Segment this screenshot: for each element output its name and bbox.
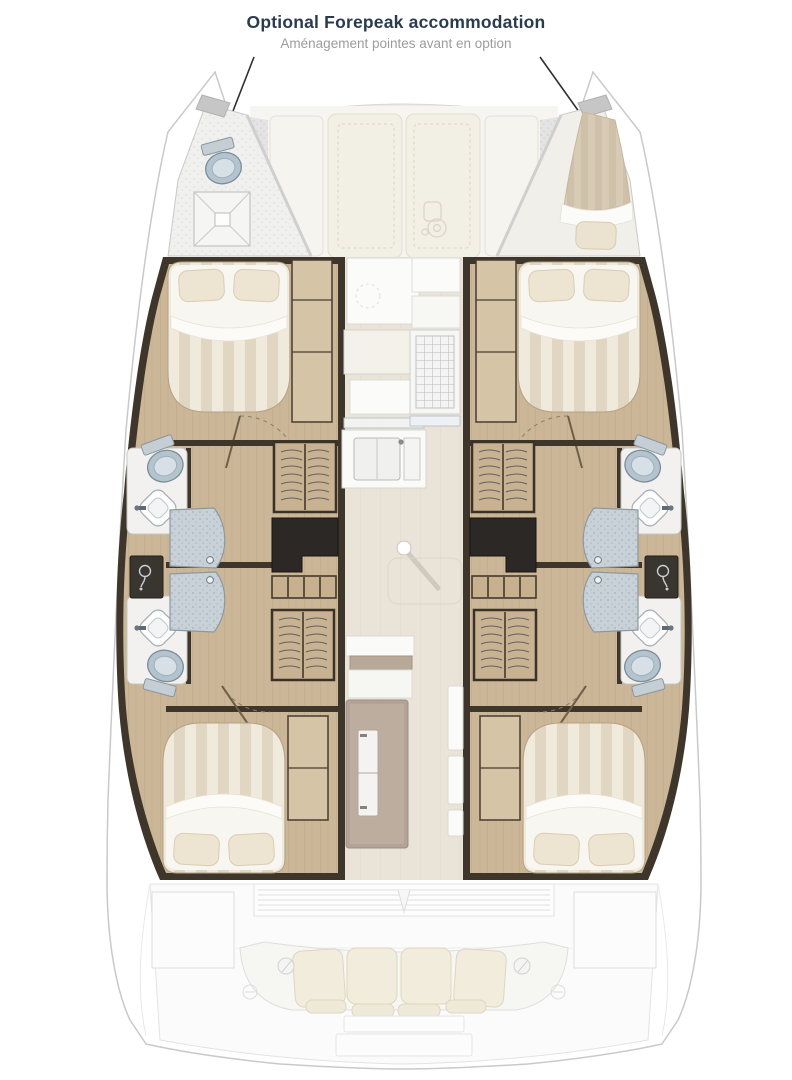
shower-panel-icon (130, 556, 163, 598)
saloon-galley (342, 257, 463, 880)
winch-starboard (514, 958, 530, 974)
stairs-forward (274, 442, 336, 512)
double-berth-forward (168, 262, 290, 412)
galley-sink (342, 430, 426, 488)
bench-cushion-1 (292, 948, 346, 1007)
starboard-hull-interior (463, 257, 692, 880)
bench-cushion-2 (347, 948, 397, 1004)
saloon-seat-unit (346, 636, 414, 698)
mast-post (397, 541, 411, 555)
forepeak-shower-tray (194, 192, 250, 246)
cockpit-locker-starboard (574, 892, 656, 968)
sunpad-mid-starboard (406, 114, 480, 258)
galley-stove (410, 330, 460, 414)
double-berth-aft (163, 723, 285, 873)
galley-counter-fwd (347, 258, 419, 324)
transom-steps (336, 1016, 472, 1056)
side-seats (448, 686, 463, 836)
fridge-freezer (346, 700, 408, 848)
deck-plan-svg (0, 0, 792, 1080)
port-hull-interior (116, 257, 345, 880)
sunpad-mid-port (328, 114, 402, 258)
cockpit-locker-port (152, 892, 234, 968)
galley-cabinet (412, 258, 460, 292)
shower-stall-forward (170, 508, 225, 568)
forepeak-berth-pillow (576, 221, 617, 249)
winch-port (278, 958, 294, 974)
cockpit (140, 884, 668, 1064)
counter-edge-stbd (410, 416, 460, 426)
bench-cushion-4 (453, 948, 507, 1007)
shower-stall-aft (170, 572, 225, 632)
wardrobe-forward (292, 260, 332, 422)
bench-cushion-3 (401, 948, 451, 1004)
louvered-sliding-door (254, 884, 554, 916)
stairs-aft (272, 610, 334, 680)
galley-worktop (412, 296, 460, 328)
boat-plan-page: Optional Forepeak accommodation Aménagem… (0, 0, 792, 1080)
galley-locker (350, 380, 416, 414)
